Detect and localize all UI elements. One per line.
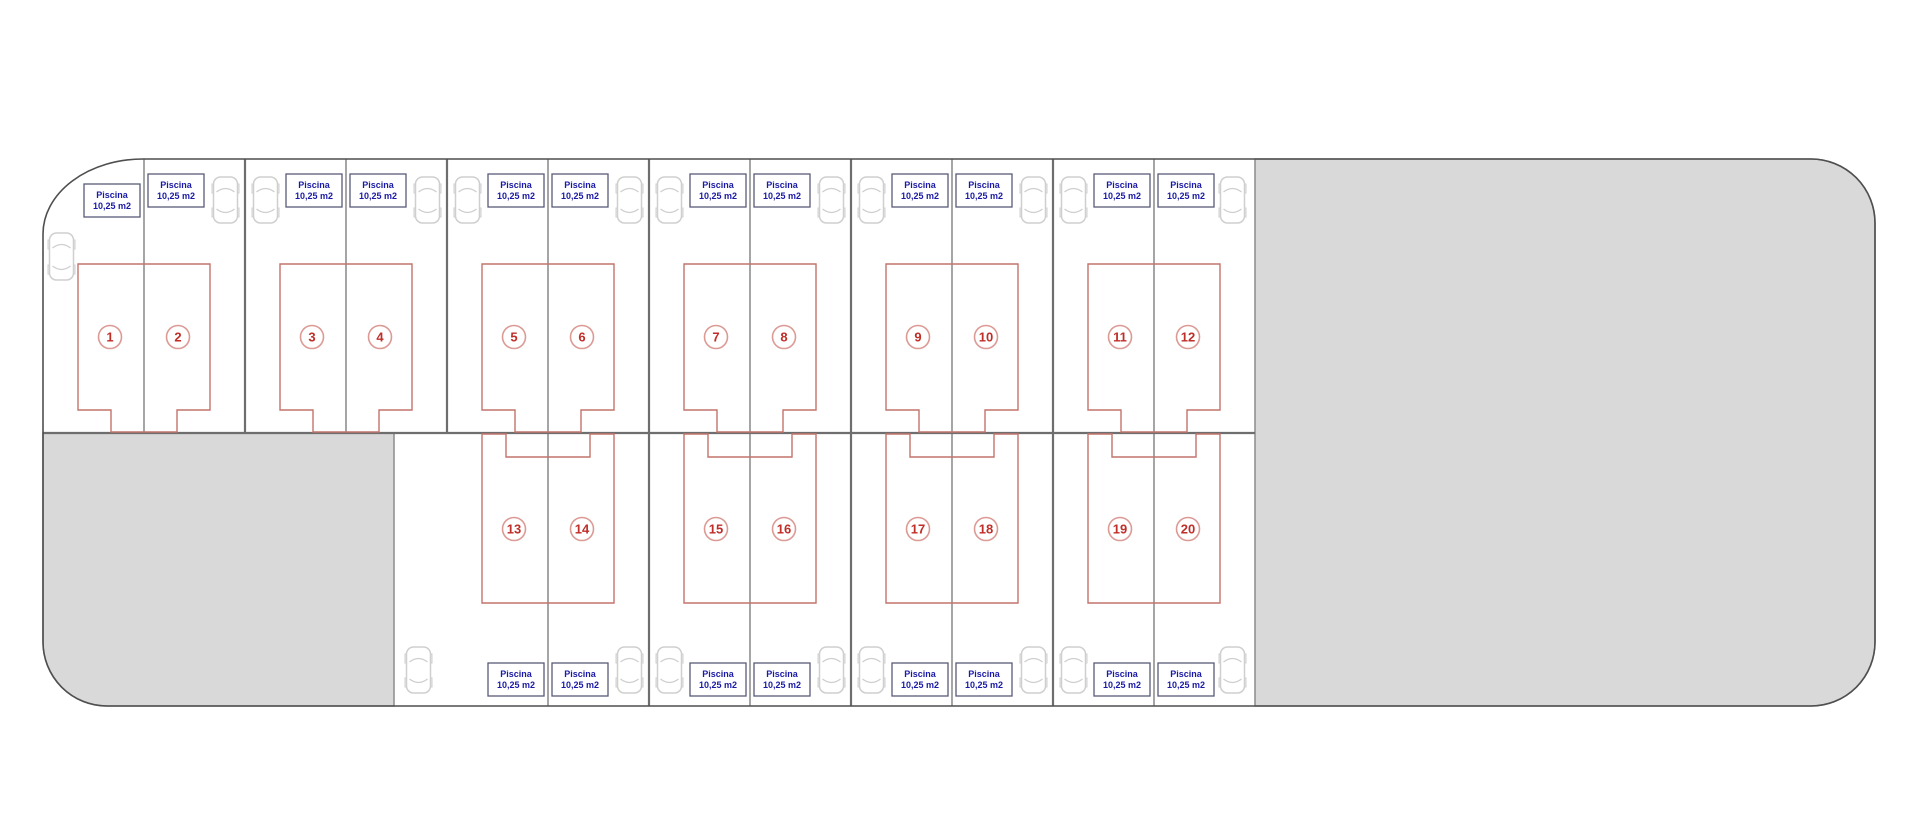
unit-number-text-12: 12 xyxy=(1181,330,1195,345)
car-icon xyxy=(1221,177,1245,223)
car-icon xyxy=(658,647,682,693)
unit-number-text-15: 15 xyxy=(709,522,723,537)
pool-label-area: 10,25 m2 xyxy=(901,191,939,201)
car-icon xyxy=(456,177,480,223)
car-icon xyxy=(618,647,642,693)
pool-label-piscina: Piscina xyxy=(904,669,937,679)
pool-label-area: 10,25 m2 xyxy=(699,191,737,201)
pool-label-piscina: Piscina xyxy=(96,190,129,200)
pool-label-piscina: Piscina xyxy=(702,669,735,679)
pool-label-area: 10,25 m2 xyxy=(699,680,737,690)
car-icon xyxy=(50,233,74,280)
unit-number-text-9: 9 xyxy=(914,330,921,345)
pool-label-piscina: Piscina xyxy=(968,180,1001,190)
pool-label-piscina: Piscina xyxy=(160,180,193,190)
pool-label-piscina: Piscina xyxy=(904,180,937,190)
unit-number-text-16: 16 xyxy=(777,522,791,537)
pool-label-piscina: Piscina xyxy=(564,180,597,190)
pool-label-piscina: Piscina xyxy=(702,180,735,190)
car-icon xyxy=(1221,647,1245,693)
unit-number-text-18: 18 xyxy=(979,522,993,537)
unit-number-text-4: 4 xyxy=(376,330,384,345)
pool-label-area: 10,25 m2 xyxy=(901,680,939,690)
pool-label-piscina: Piscina xyxy=(1106,180,1139,190)
pool-label-area: 10,25 m2 xyxy=(497,191,535,201)
car-icon xyxy=(214,177,238,223)
unit-number-text-17: 17 xyxy=(911,522,925,537)
unit-number-text-6: 6 xyxy=(578,330,585,345)
pool-label-piscina: Piscina xyxy=(968,669,1001,679)
car-icon xyxy=(820,177,844,223)
car-icon xyxy=(416,177,440,223)
pool-label-area: 10,25 m2 xyxy=(965,191,1003,201)
unit-number-text-3: 3 xyxy=(308,330,315,345)
car-icon xyxy=(820,647,844,693)
pool-label-area: 10,25 m2 xyxy=(1103,191,1141,201)
pool-label-piscina: Piscina xyxy=(500,669,533,679)
site-plan: Piscina10,25 m2Piscina10,25 m2Piscina10,… xyxy=(0,0,1920,837)
unit-number-text-11: 11 xyxy=(1113,330,1127,345)
car-icon xyxy=(1062,177,1086,223)
car-icon xyxy=(658,177,682,223)
car-icon xyxy=(1022,647,1046,693)
pool-label-area: 10,25 m2 xyxy=(1167,191,1205,201)
pool-label-area: 10,25 m2 xyxy=(295,191,333,201)
unit-number-text-8: 8 xyxy=(780,330,787,345)
pool-label-piscina: Piscina xyxy=(362,180,395,190)
car-icon xyxy=(860,177,884,223)
pool-label-area: 10,25 m2 xyxy=(763,191,801,201)
pool-label-piscina: Piscina xyxy=(766,669,799,679)
pool-label-piscina: Piscina xyxy=(500,180,533,190)
grey-area-right xyxy=(1255,159,1875,706)
pool-label-piscina: Piscina xyxy=(1106,669,1139,679)
pool-label-piscina: Piscina xyxy=(564,669,597,679)
car-icon xyxy=(618,177,642,223)
pool-label-piscina: Piscina xyxy=(1170,669,1203,679)
grey-area-bottom-left xyxy=(43,433,394,706)
site-plan-page: Piscina10,25 m2Piscina10,25 m2Piscina10,… xyxy=(0,0,1920,837)
unit-number-text-5: 5 xyxy=(510,330,517,345)
pool-label-piscina: Piscina xyxy=(1170,180,1203,190)
pool-label-area: 10,25 m2 xyxy=(763,680,801,690)
pool-label-area: 10,25 m2 xyxy=(965,680,1003,690)
unit-number-text-20: 20 xyxy=(1181,522,1195,537)
pool-label-area: 10,25 m2 xyxy=(1167,680,1205,690)
pool-label-piscina: Piscina xyxy=(298,180,331,190)
pool-label-piscina: Piscina xyxy=(766,180,799,190)
unit-number-text-7: 7 xyxy=(712,330,719,345)
unit-number-text-13: 13 xyxy=(507,522,521,537)
pool-label-area: 10,25 m2 xyxy=(93,201,131,211)
car-icon xyxy=(407,647,431,693)
unit-number-text-10: 10 xyxy=(979,330,993,345)
unit-number-text-2: 2 xyxy=(174,330,181,345)
pool-label-area: 10,25 m2 xyxy=(359,191,397,201)
car-icon xyxy=(1022,177,1046,223)
car-icon xyxy=(1062,647,1086,693)
car-icon xyxy=(860,647,884,693)
car-icon xyxy=(254,177,278,223)
pool-label-area: 10,25 m2 xyxy=(497,680,535,690)
pool-label-area: 10,25 m2 xyxy=(561,191,599,201)
pool-label-area: 10,25 m2 xyxy=(157,191,195,201)
pool-label-area: 10,25 m2 xyxy=(1103,680,1141,690)
unit-number-text-1: 1 xyxy=(106,330,113,345)
pool-label-area: 10,25 m2 xyxy=(561,680,599,690)
unit-number-text-19: 19 xyxy=(1113,522,1127,537)
unit-number-text-14: 14 xyxy=(575,522,590,537)
